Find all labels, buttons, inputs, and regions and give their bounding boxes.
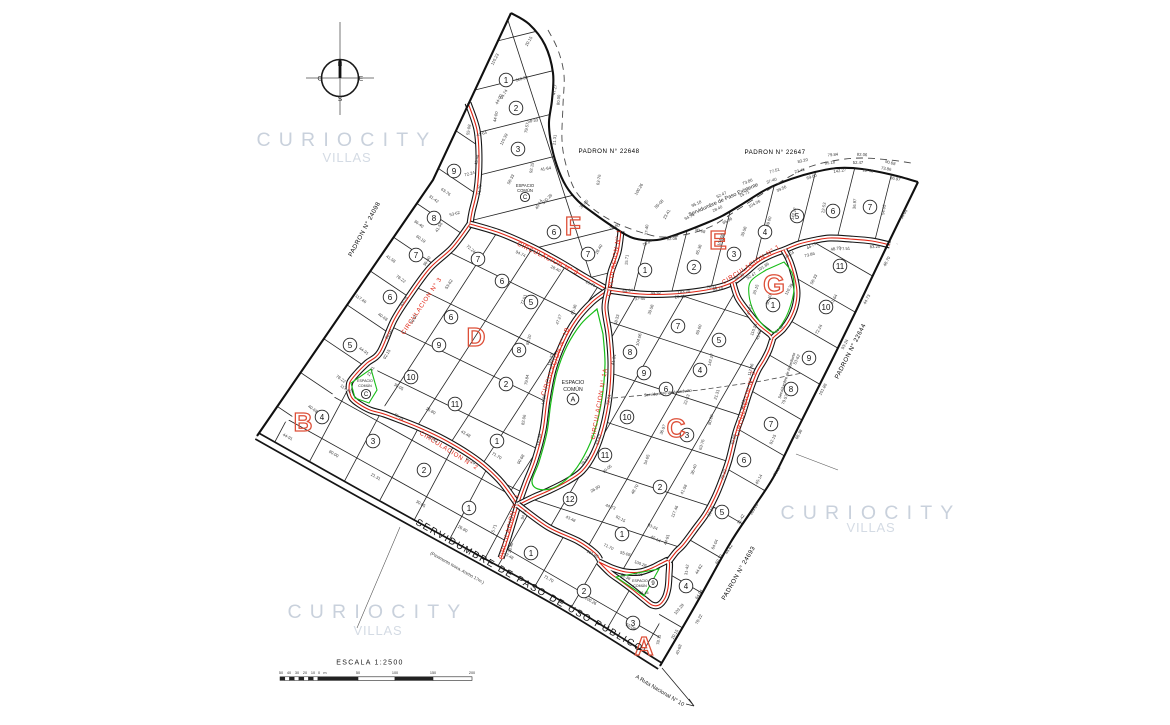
svg-text:2: 2 <box>422 466 427 475</box>
svg-text:12: 12 <box>566 495 575 504</box>
svg-text:3: 3 <box>516 145 521 154</box>
svg-text:7: 7 <box>586 250 591 259</box>
svg-text:9: 9 <box>807 354 812 363</box>
svg-text:82.06: 82.06 <box>857 152 868 158</box>
svg-text:80.00: 80.00 <box>556 94 562 106</box>
svg-text:7: 7 <box>476 255 481 264</box>
svg-text:COMÚN: COMÚN <box>563 386 583 393</box>
svg-text:O: O <box>317 76 322 83</box>
svg-text:ESPACIO: ESPACIO <box>562 380 585 386</box>
svg-text:9: 9 <box>452 167 457 176</box>
svg-text:100: 100 <box>392 671 398 675</box>
svg-text:7: 7 <box>676 322 681 331</box>
svg-text:11: 11 <box>836 262 845 271</box>
svg-text:22-53: 22-53 <box>863 168 875 174</box>
svg-text:1: 1 <box>643 266 648 275</box>
svg-text:1: 1 <box>467 504 472 513</box>
svg-text:A: A <box>571 397 576 404</box>
svg-text:10: 10 <box>407 373 416 382</box>
svg-text:200: 200 <box>469 671 475 675</box>
svg-text:9: 9 <box>437 341 442 350</box>
svg-text:C: C <box>667 413 686 443</box>
svg-text:6: 6 <box>552 228 557 237</box>
svg-text:4: 4 <box>684 582 689 591</box>
svg-text:7: 7 <box>769 420 774 429</box>
svg-text:4: 4 <box>320 413 325 422</box>
svg-text:6: 6 <box>831 207 836 216</box>
svg-text:150: 150 <box>430 671 436 675</box>
svg-text:7: 7 <box>414 251 419 260</box>
svg-text:8: 8 <box>432 214 437 223</box>
svg-text:1: 1 <box>504 76 509 85</box>
svg-text:S: S <box>338 96 343 103</box>
svg-text:7: 7 <box>868 203 873 212</box>
svg-text:B: B <box>294 407 313 437</box>
svg-text:5: 5 <box>348 341 353 350</box>
svg-text:36.97: 36.97 <box>852 198 858 210</box>
svg-text:VILLAS: VILLAS <box>323 150 372 165</box>
svg-text:6: 6 <box>449 313 454 322</box>
svg-text:CURIOCITY: CURIOCITY <box>287 601 468 623</box>
svg-text:8: 8 <box>789 385 794 394</box>
svg-text:COMÚN: COMÚN <box>517 188 533 193</box>
svg-text:21.31: 21.31 <box>552 134 558 146</box>
svg-text:0: 0 <box>318 671 320 675</box>
svg-text:10: 10 <box>311 671 315 675</box>
svg-text:VILLAS: VILLAS <box>354 623 403 638</box>
svg-text:10: 10 <box>623 413 632 422</box>
svg-text:50: 50 <box>356 671 360 675</box>
svg-text:9: 9 <box>642 369 647 378</box>
svg-text:77.51: 77.51 <box>839 246 851 252</box>
svg-text:G: G <box>763 269 785 300</box>
svg-text:82.06: 82.06 <box>667 236 678 242</box>
svg-text:1: 1 <box>529 549 534 558</box>
svg-text:6: 6 <box>388 293 393 302</box>
svg-text:1: 1 <box>495 437 500 446</box>
svg-text:20: 20 <box>303 671 307 675</box>
svg-text:21.45: 21.45 <box>640 591 649 595</box>
svg-text:6: 6 <box>500 277 505 286</box>
svg-text:2: 2 <box>658 483 663 492</box>
svg-text:15.71: 15.71 <box>624 254 630 266</box>
svg-text:COMÚN: COMÚN <box>358 383 372 388</box>
svg-text:N: N <box>338 61 343 68</box>
svg-text:3: 3 <box>685 431 690 440</box>
svg-text:COMÚN: COMÚN <box>633 583 647 588</box>
svg-text:5: 5 <box>717 336 722 345</box>
svg-text:C: C <box>364 392 369 398</box>
svg-text:5: 5 <box>720 508 725 517</box>
svg-text:CURIOCITY: CURIOCITY <box>256 129 437 151</box>
svg-text:VILLAS: VILLAS <box>847 520 896 535</box>
svg-text:4: 4 <box>763 228 768 237</box>
svg-text:37-40: 37-40 <box>644 224 650 236</box>
svg-text:103.28: 103.28 <box>677 289 691 295</box>
svg-text:ESPACIO: ESPACIO <box>357 379 373 383</box>
svg-text:23.41: 23.41 <box>674 294 686 300</box>
svg-text:ESPACIO: ESPACIO <box>632 579 648 583</box>
svg-text:79.84: 79.84 <box>827 152 839 158</box>
svg-text:5: 5 <box>529 298 534 307</box>
svg-text:E: E <box>359 76 364 83</box>
svg-text:3: 3 <box>371 437 376 446</box>
svg-text:11: 11 <box>601 451 610 460</box>
svg-text:56.95: 56.95 <box>634 573 643 577</box>
svg-text:30: 30 <box>295 671 299 675</box>
svg-text:1: 1 <box>771 301 776 310</box>
svg-text:4: 4 <box>698 366 703 375</box>
svg-text:m: m <box>323 671 326 675</box>
svg-text:40: 40 <box>287 671 291 675</box>
svg-text:PADRON N° 22648: PADRON N° 22648 <box>578 148 639 155</box>
svg-text:8: 8 <box>517 346 522 355</box>
svg-text:2: 2 <box>514 104 519 113</box>
svg-text:D: D <box>467 322 486 352</box>
svg-text:ESCALA 1:2500: ESCALA 1:2500 <box>336 660 404 667</box>
svg-text:37-40: 37-40 <box>634 296 646 302</box>
svg-text:1: 1 <box>620 530 625 539</box>
svg-text:3: 3 <box>732 250 737 259</box>
svg-text:2: 2 <box>504 380 509 389</box>
svg-text:PADRON N° 22647: PADRON N° 22647 <box>744 149 805 156</box>
svg-text:44.62: 44.62 <box>651 290 662 295</box>
svg-text:2: 2 <box>692 263 697 272</box>
svg-text:50: 50 <box>279 671 283 675</box>
svg-text:11: 11 <box>451 400 460 409</box>
svg-text:83.20: 83.20 <box>870 244 881 250</box>
svg-text:C: C <box>523 195 528 201</box>
svg-text:F: F <box>565 211 581 241</box>
svg-text:8: 8 <box>628 348 633 357</box>
svg-text:52.47: 52.47 <box>853 160 864 165</box>
svg-text:6: 6 <box>742 456 747 465</box>
